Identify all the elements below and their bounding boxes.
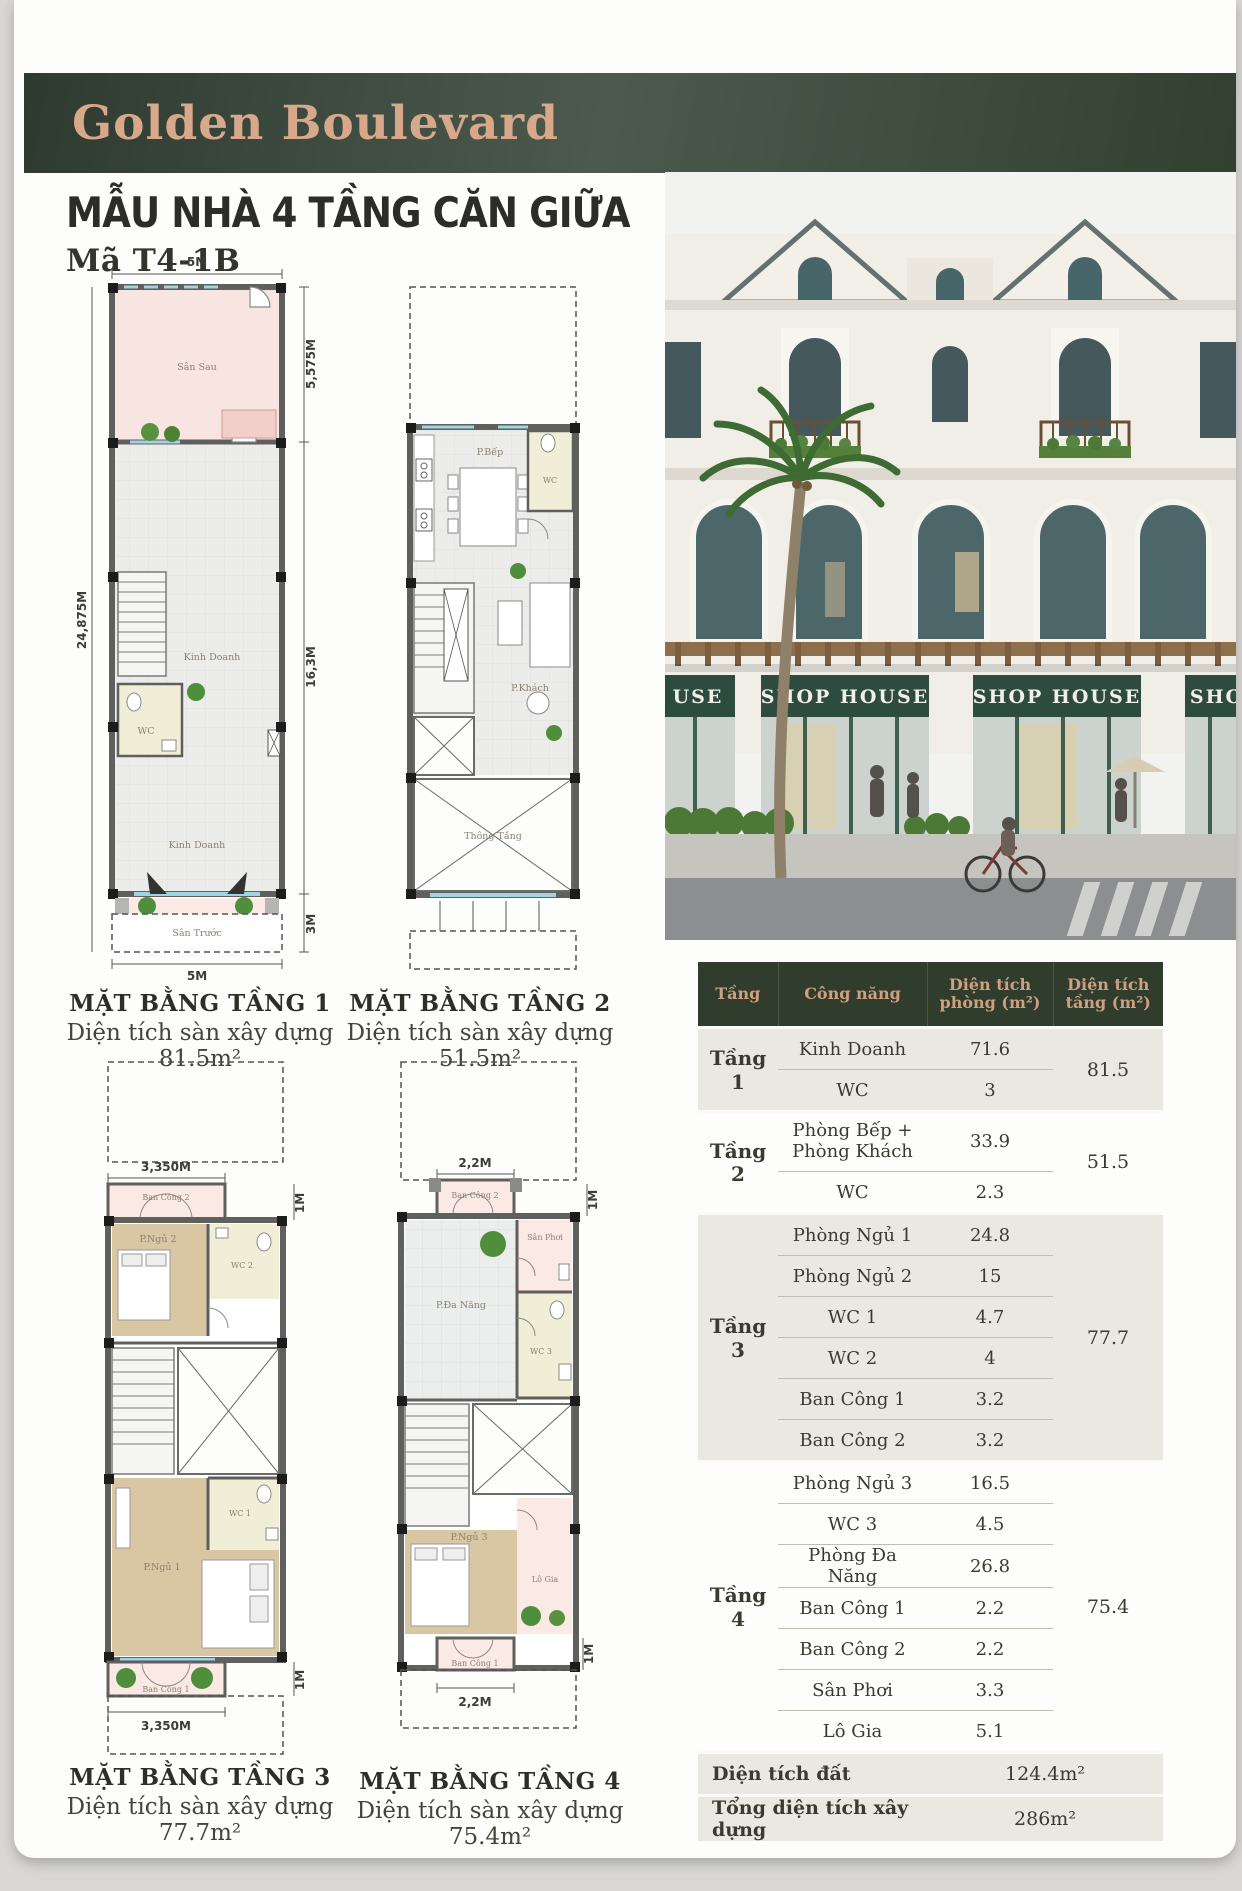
plan4-dim-top: 2,2M [458,1156,491,1170]
cell-value: 4 [927,1338,1053,1379]
plan3-caption: MẶT BẰNG TẦNG 3 Diện tích sàn xây dựng 7… [50,1764,350,1846]
room-label-thong-tang: Thông Tầng [464,831,522,842]
table-row: Tầng 1 Kinh Doanh 71.6 81.5 [698,1028,1163,1070]
building-render: USE SHOP HOUSE SHOP HOUSE SHO [665,172,1236,940]
page-title: MẪU NHÀ 4 TẦNG CĂN GIỮA [66,189,630,237]
table-group-floor4: Tầng 4 Phòng Ngủ 3 16.5 75.4 WC 34.5 Phò… [698,1462,1163,1753]
plan1-dim-bottom: 5M [187,969,207,982]
room-label-wc2f: WC [543,476,557,485]
plan4-dim-bottom: 2,2M [458,1695,491,1709]
plan3-dim-bottom: 3,350M [141,1719,191,1733]
table-row: Tầng 3 Phòng Ngủ 1 24.8 77.7 [698,1214,1163,1256]
room-label-kinh-doanh-1: Kinh Doanh [184,652,241,663]
footer-label-land-area: Diện tích đất [698,1753,927,1796]
room-label-san-phoi: Sân Phơi [527,1233,563,1242]
floor-plan-1: 5M 24,875M 5,575M 16,3M 3M WC Sân Sau Ki… [72,252,322,982]
floor-plan-2: P.Bếp WC P.Khách Thông Tầng [378,283,608,983]
cell-floor: Tầng 3 [698,1214,778,1462]
plan1-dim-right-mid: 16,3M [304,646,318,688]
cell-room: WC 2 [778,1338,927,1379]
table-footer: Diện tích đất 124.4m² Tổng diện tích xây… [698,1753,1163,1842]
table-row: Tầng 2 Phòng Bếp + Phòng Khách 33.9 51.5 [698,1112,1163,1172]
shop-sign-partial-left: USE [673,686,724,708]
porch-posts [440,901,539,931]
cell-total: 51.5 [1053,1112,1163,1214]
room-label-bep: P.Bếp [477,447,503,458]
room-label-ban-cong-2: Ban Công 2 [142,1193,189,1202]
footer-label-total-built: Tổng diện tích xây dựng [698,1796,927,1842]
cell-value: 5.1 [927,1711,1053,1753]
col-header-room-area: Diện tích phòng (m²) [927,962,1053,1028]
cell-room: Phòng Ngủ 1 [778,1214,927,1256]
floor-plan-4: 2,2M 1M Ban Công 2 P.Đa Năng Sân Phơi WC… [365,1058,620,1764]
cell-floor: Tầng 1 [698,1028,778,1112]
table-row: Tổng diện tích xây dựng 286m² [698,1796,1163,1842]
plan3-dim-right-bottom: 1M [293,1670,307,1690]
shop-sign-partial-right: SHO [1190,686,1236,708]
cell-value: 15 [927,1256,1053,1297]
room-label-khach: P.Khách [511,683,549,694]
cell-floor: Tầng 4 [698,1462,778,1753]
room-label-ngu-2: P.Ngủ 2 [139,1234,176,1245]
plan1-dim-right-bottom: 3M [304,914,318,934]
brand-logo: Golden Boulevard [72,96,559,151]
cell-room: Ban Công 2 [778,1629,927,1670]
cell-value: 2.3 [927,1172,1053,1214]
cell-value: 4.7 [927,1297,1053,1338]
plan4-dim-right-top: 1M [586,1190,600,1210]
cell-room: Phòng Ngủ 3 [778,1462,927,1504]
plan1-dim-top: 5M [112,255,282,279]
cell-total: 81.5 [1053,1028,1163,1112]
cell-room: WC [778,1172,927,1214]
cell-value: 3.2 [927,1420,1053,1462]
cell-room: Ban Công 1 [778,1379,927,1420]
cell-room: Kinh Doanh [778,1028,927,1070]
cell-room: WC 3 [778,1504,927,1545]
room-label-lo-gia: Lô Gia [532,1575,559,1584]
room-label-wc-1: WC 1 [229,1509,251,1518]
area-table: Tầng Công năng Diện tích phòng (m²) Diện… [698,962,1163,1841]
room-label-wc-3: WC 3 [530,1347,552,1356]
table-row: Tầng 4 Phòng Ngủ 3 16.5 75.4 [698,1462,1163,1504]
plan4-caption: MẶT BẰNG TẦNG 4 Diện tích sàn xây dựng 7… [340,1768,640,1850]
table-group-floor2: Tầng 2 Phòng Bếp + Phòng Khách 33.9 51.5… [698,1112,1163,1214]
table-group-floor1: Tầng 1 Kinh Doanh 71.6 81.5 WC 3 [698,1028,1163,1112]
cell-value: 26.8 [927,1545,1053,1588]
room-label-wc1: WC [137,726,154,737]
cell-room: Lô Gia [778,1711,927,1753]
cell-total: 77.7 [1053,1214,1163,1462]
cell-value: 3.2 [927,1379,1053,1420]
room-label-wc-2: WC 2 [231,1261,253,1270]
cell-room: WC 1 [778,1297,927,1338]
room-label-ban-cong-1: Ban Công 1 [142,1685,189,1694]
cell-value: 16.5 [927,1462,1053,1504]
cell-room: Sân Phơi [778,1670,927,1711]
room-label-ban-cong-1: Ban Công 1 [451,1659,498,1668]
cell-value: 33.9 [927,1112,1053,1172]
cell-room: Phòng Ngủ 2 [778,1256,927,1297]
plan3-dim-top: 3,350M [141,1160,191,1174]
cell-room: Phòng Đa Năng [778,1545,927,1588]
cell-value: 2.2 [927,1629,1053,1670]
cell-room: Phòng Bếp + Phòng Khách [778,1112,927,1172]
plan4-dim-right-bottom: 1M [582,1644,596,1664]
brand-banner: Golden Boulevard [24,73,1236,173]
shop-sign-2: SHOP HOUSE [973,686,1141,708]
cell-room: WC [778,1070,927,1112]
table-group-floor3: Tầng 3 Phòng Ngủ 1 24.8 77.7 Phòng Ngủ 2… [698,1214,1163,1462]
cell-total: 75.4 [1053,1462,1163,1753]
area-table-header: Tầng Công năng Diện tích phòng (m²) Diện… [698,962,1163,1028]
cell-value: 2.2 [927,1588,1053,1629]
cell-value: 24.8 [927,1214,1053,1256]
sidewalk [665,834,1236,880]
cell-value: 4.5 [927,1504,1053,1545]
cell-value: 3 [927,1070,1053,1112]
room-label-san-truoc: Sân Trước [172,928,221,939]
floor-plan-3: 3,350M 1M Ban Công 2 P.Ngủ 2 WC 2 WC 1 P… [70,1058,325,1760]
col-header-function: Công năng [778,962,927,1028]
room-label-da-nang: P.Đa Năng [436,1300,486,1311]
table-row: Diện tích đất 124.4m² [698,1753,1163,1796]
svg-text:5M: 5M [187,255,207,269]
plan1-dim-right-top: 5,575M [304,339,318,389]
plan3-dim-right-top: 1M [293,1193,307,1213]
cell-room: Ban Công 2 [778,1420,927,1462]
cell-value: 3.3 [927,1670,1053,1711]
col-header-floor: Tầng [698,962,778,1028]
room-label-ban-cong-2: Ban Công 2 [451,1191,498,1200]
cell-value: 71.6 [927,1028,1053,1070]
plan1-dim-left: 24,875M [75,591,89,649]
room-label-ngu-1: P.Ngủ 1 [143,1562,180,1573]
footer-value-total-built: 286m² [927,1796,1163,1842]
cell-floor: Tầng 2 [698,1112,778,1214]
col-header-floor-area: Diện tích tầng (m²) [1053,962,1163,1028]
room-label-san-sau: Sân Sau [177,362,217,373]
room-label-ngu-3: P.Ngủ 3 [450,1532,487,1543]
room-label-kinh-doanh-2: Kinh Doanh [169,840,226,851]
cell-room: Ban Công 1 [778,1588,927,1629]
footer-value-land-area: 124.4m² [927,1753,1163,1796]
